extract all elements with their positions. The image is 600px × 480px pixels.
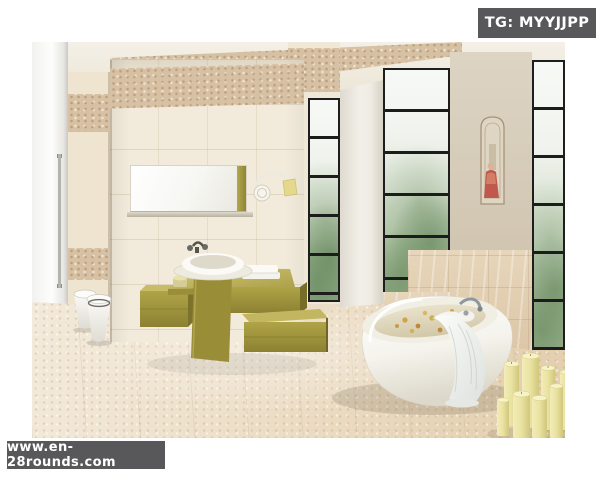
wall-lamp [254,174,297,201]
watermark-badge: www.en-28rounds.com [7,441,165,469]
tag-badge: TG: MYYJJPP [478,8,596,38]
screenshot: TG: MYYJJPP www.en-28rounds.com [0,0,600,480]
pillar-candles [497,353,565,438]
vanity-shadow [147,353,317,375]
toilet [87,295,111,343]
vanity [140,268,328,362]
bathroom-photo [32,42,565,438]
watermark-badge-text: www.en-28rounds.com [7,440,165,470]
tag-badge-text: TG: MYYJJPP [485,15,590,31]
vessel-sink [174,253,252,280]
wall-faucet [187,243,208,254]
door-handle [57,154,62,288]
fixtures-layer [32,42,565,438]
